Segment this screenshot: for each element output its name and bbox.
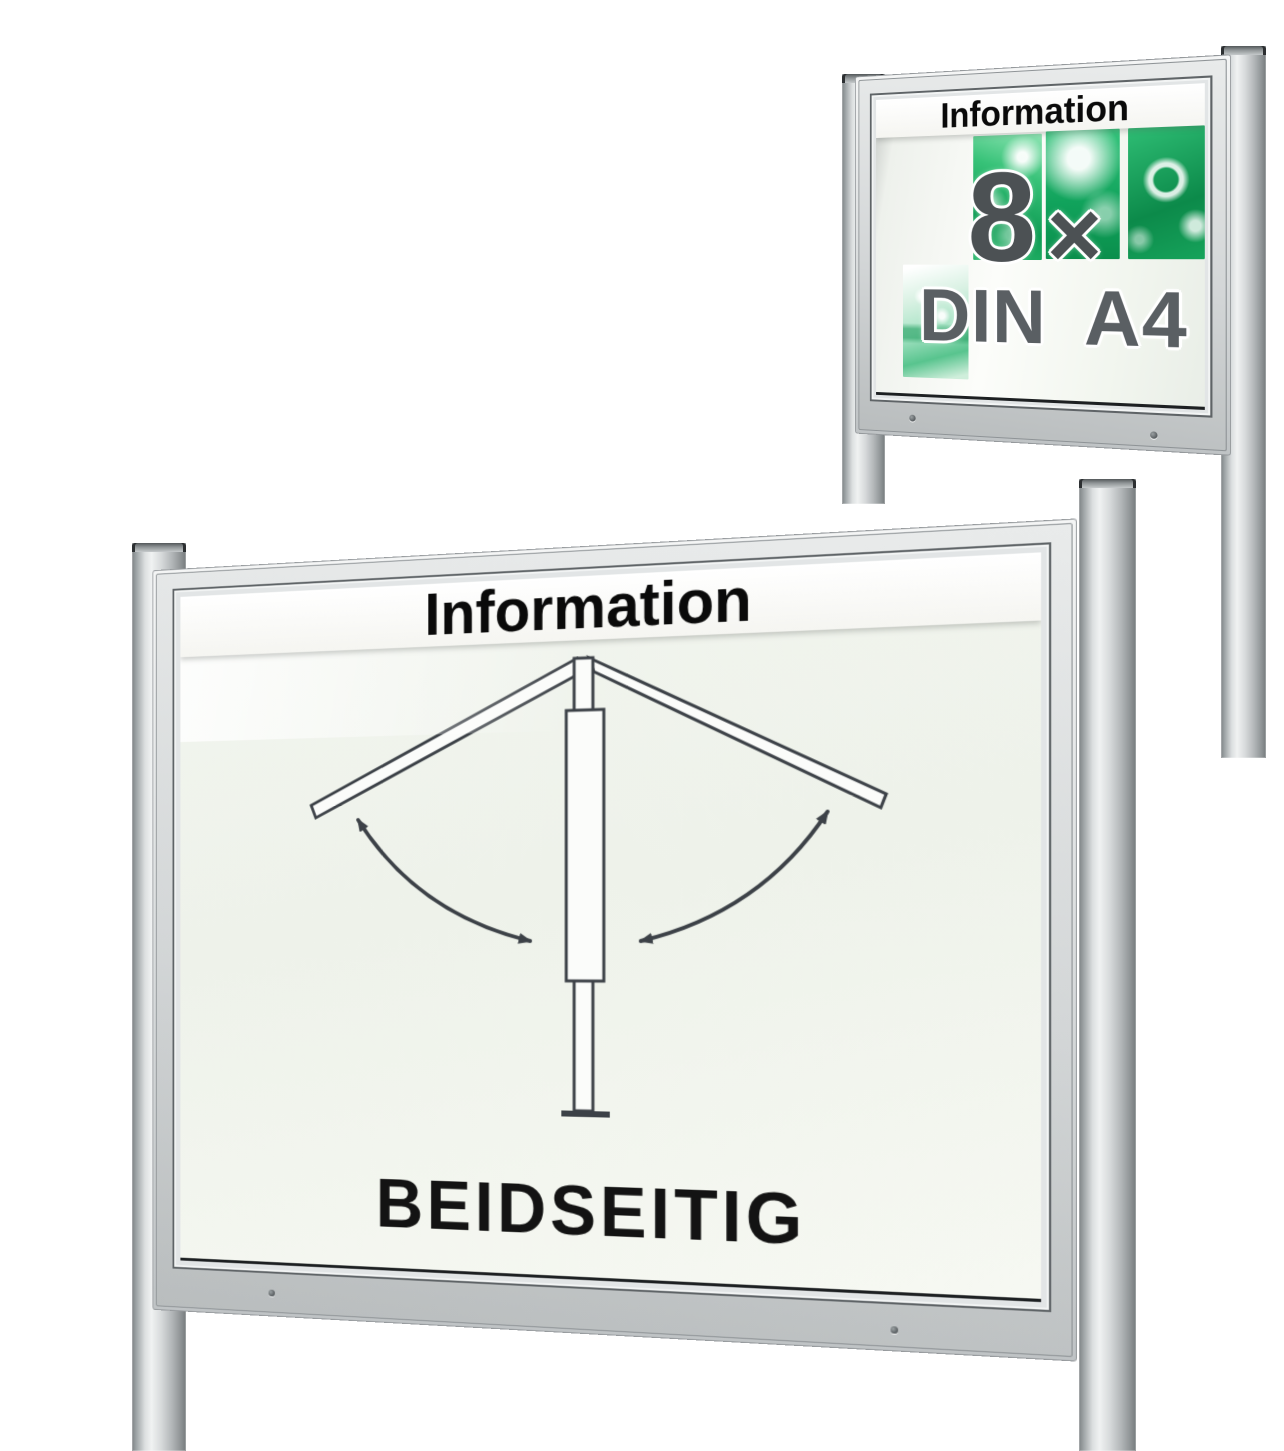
small-board-glass: Information 8 × DIN A4 (876, 83, 1205, 410)
large-board-right-post (1079, 479, 1136, 1451)
product-image-canvas: Information 8 × DIN A4 (0, 0, 1284, 1451)
small-notice-board-case: Information 8 × DIN A4 (855, 54, 1231, 456)
large-board-outer-frame: Information (152, 518, 1077, 1361)
small-board-door: Information 8 × DIN A4 (870, 75, 1213, 417)
left-door-panel (311, 658, 582, 818)
right-door-panel (588, 646, 885, 813)
screw-icon (909, 415, 915, 422)
large-board-frame-band: Information (156, 523, 1073, 1357)
large-board-header-label: Information (425, 568, 752, 646)
large-board-glass: Information (180, 552, 1041, 1302)
screw-icon (269, 1290, 275, 1297)
screw-icon (891, 1326, 899, 1334)
right-swing-arrow (640, 812, 827, 941)
small-board-poster-area: 8 × DIN A4 (876, 125, 1205, 406)
large-notice-board-case: Information (152, 518, 1077, 1361)
large-board-door: Information (173, 542, 1052, 1312)
pole-foot (561, 1113, 609, 1114)
large-board-display-area: BEIDSEITIG (180, 621, 1041, 1299)
capacity-format-text: DIN A4 (919, 279, 1188, 361)
small-board-frame-band: Information 8 × DIN A4 (858, 59, 1226, 452)
screw-icon (1150, 431, 1157, 439)
left-swing-arrow (358, 817, 530, 941)
small-board-outer-frame: Information 8 × DIN A4 (855, 54, 1231, 456)
capacity-times-symbol: × (1047, 187, 1102, 283)
double-sided-swing-diagram (291, 635, 905, 1137)
small-board-header-label: Information (940, 89, 1129, 133)
capacity-count-text: 8 (968, 154, 1037, 282)
double-sided-caption: BEIDSEITIG (180, 1162, 1041, 1265)
pole-sleeve (566, 709, 604, 981)
green-poster-tile-3 (1128, 125, 1205, 259)
